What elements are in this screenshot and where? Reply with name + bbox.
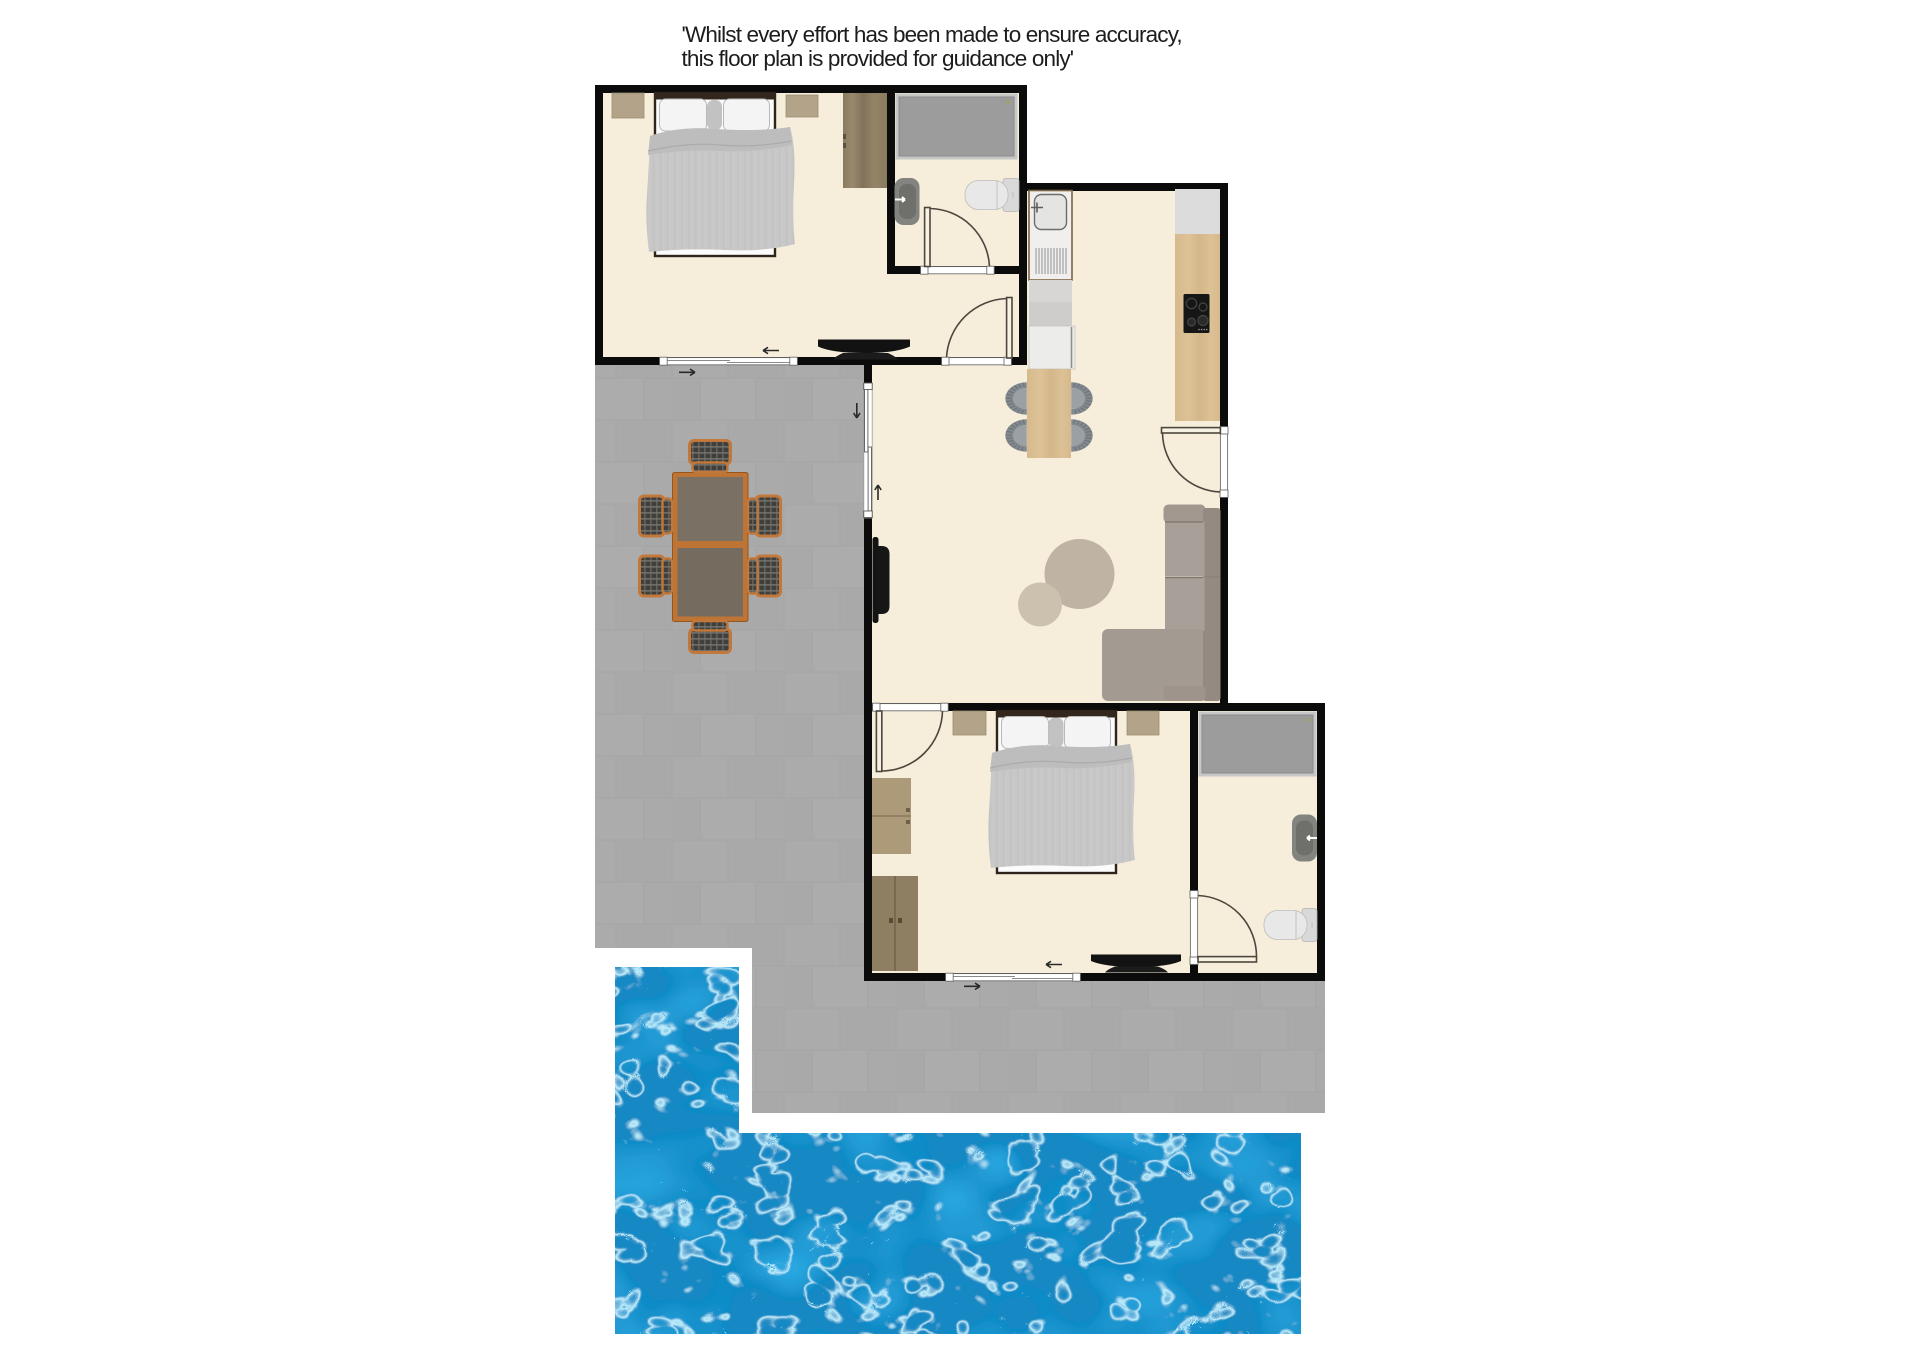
svg-text:'Whilst every effort has been: 'Whilst every effort has been made to en… xyxy=(682,22,1182,47)
svg-text:this floor plan is provided fo: this floor plan is provided for guidance… xyxy=(682,46,1074,71)
